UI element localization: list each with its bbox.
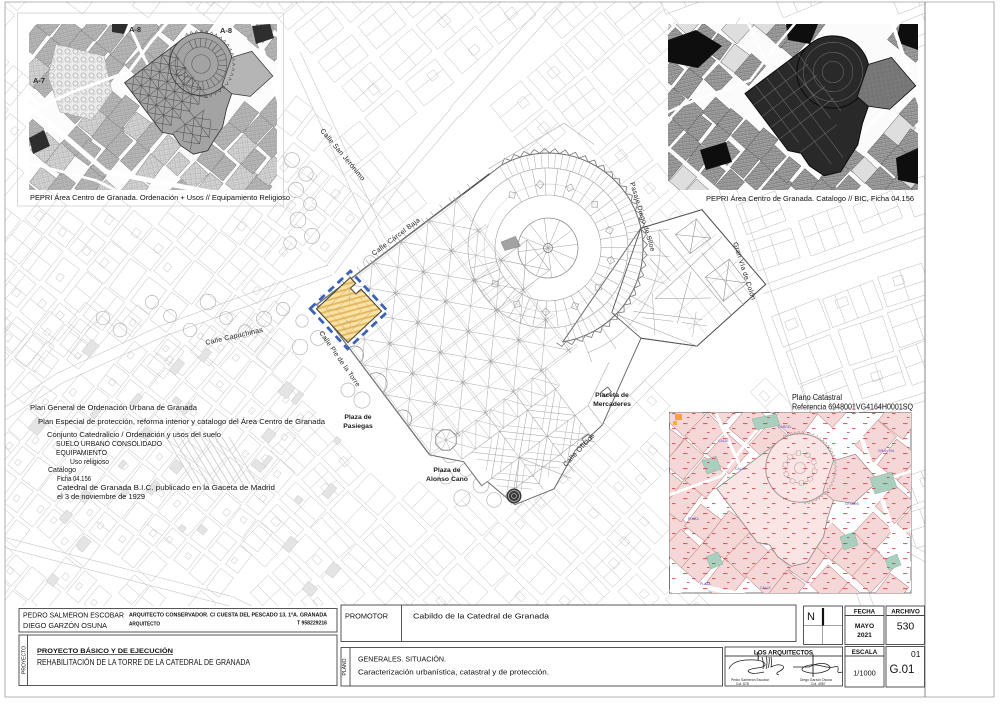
svg-text:PEPRI Área Centro de Granada.: PEPRI Área Centro de Granada. Ordenación… [30, 193, 290, 202]
svg-text:SUELO URBANO CONSOLIDADO: SUELO URBANO CONSOLIDADO [56, 439, 162, 448]
svg-text:CALLE: CALLE [760, 586, 771, 590]
svg-text:DIEGO GARZÓN OSUNA: DIEGO GARZÓN OSUNA [23, 621, 108, 630]
svg-text:Col. 4087: Col. 4087 [811, 682, 826, 686]
svg-text:CALLE: CALLE [718, 439, 729, 443]
svg-text:Plaza de: Plaza de [433, 467, 460, 474]
svg-text:Referencia 6948001VG4164H0001S: Referencia 6948001VG4164H0001SQ [792, 403, 913, 412]
svg-text:T 958229216: T 958229216 [297, 621, 327, 627]
svg-text:530: 530 [897, 621, 915, 633]
svg-text:ARQUITECTO CONSERVADOR. C/ CU: ARQUITECTO CONSERVADOR. C/ CUESTA DEL PE… [129, 613, 327, 619]
svg-text:Caracterización urbanística, c: Caracterización urbanística, catastral y… [358, 668, 549, 677]
svg-text:A-8: A-8 [129, 25, 141, 34]
svg-text:Plano Catastral: Plano Catastral [792, 393, 842, 402]
svg-text:PROYECTO BÁSICO Y DE EJECUCIÓN: PROYECTO BÁSICO Y DE EJECUCIÓN [37, 647, 174, 655]
svg-text:Catedral de Granada B.I.C. pub: Catedral de Granada B.I.C. publicado en … [57, 483, 275, 492]
svg-text:1/1000: 1/1000 [853, 669, 876, 678]
svg-text:ESCALA: ESCALA [852, 649, 878, 656]
svg-text:EQUIPAMIENTO: EQUIPAMIENTO [56, 448, 107, 457]
svg-text:Conjunto Catedralicio / Ordena: Conjunto Catedralicio / Ordenación y uso… [47, 430, 221, 439]
svg-text:Col. 678: Col. 678 [736, 682, 749, 686]
svg-text:CARCEL: CARCEL [778, 425, 792, 429]
svg-text:PLAZA: PLAZA [700, 582, 711, 586]
svg-text:Catálogo: Catálogo [48, 465, 76, 474]
svg-text:OFICIOS: OFICIOS [845, 502, 860, 506]
svg-text:Plaza de: Plaza de [344, 414, 371, 421]
svg-text:A-7: A-7 [33, 76, 45, 85]
svg-text:LOS ARQUITECTOS: LOS ARQUITECTOS [754, 650, 813, 657]
svg-text:Plan General de Ordenación Urb: Plan General de Ordenación Urbana de Gra… [30, 403, 198, 412]
svg-text:Cabildo de la Catedral de Gran: Cabildo de la Catedral de Granada [413, 612, 550, 621]
svg-text:A-8: A-8 [220, 26, 232, 35]
svg-text:PLANO: PLANO [342, 658, 348, 675]
svg-text:PEPRI Área Centro de Granada.: PEPRI Área Centro de Granada. Catalogo /… [706, 194, 914, 203]
svg-text:N: N [807, 611, 815, 623]
svg-text:REHABILITACIÓN DE LA TORRE DE: REHABILITACIÓN DE LA TORRE DE LA CATEDRA… [37, 658, 251, 667]
svg-text:Ficha 04.156: Ficha 04.156 [57, 474, 91, 483]
svg-text:MAYO: MAYO [855, 623, 874, 630]
svg-text:G.01: G.01 [890, 664, 915, 676]
svg-text:2021: 2021 [857, 632, 872, 639]
svg-text:PROYECTO: PROYECTO [22, 646, 28, 674]
svg-text:CALLE: CALLE [735, 467, 746, 471]
svg-text:PROMOTOR: PROMOTOR [345, 612, 388, 621]
svg-text:PEDRO SALMERON ESCOBAR: PEDRO SALMERON ESCOBAR [23, 611, 124, 620]
svg-text:PLAZA: PLAZA [688, 517, 699, 521]
svg-text:Alonso Cano: Alonso Cano [426, 476, 468, 483]
svg-text:GRAN VIA: GRAN VIA [878, 449, 895, 453]
svg-text:Placeta de: Placeta de [595, 392, 629, 399]
svg-text:el 3 de noviembre de 1929: el 3 de noviembre de 1929 [57, 492, 145, 501]
svg-text:ARQUITECTO: ARQUITECTO [129, 622, 160, 628]
svg-text:ARCHIVO: ARCHIVO [891, 609, 920, 616]
svg-text:FECHA: FECHA [854, 609, 876, 616]
svg-text:GENERALES. SITUACIÓN.: GENERALES. SITUACIÓN. [358, 655, 446, 664]
svg-text:Pasiegas: Pasiegas [343, 423, 373, 430]
svg-text:Plan Especial de protección, r: Plan Especial de protección, reforma int… [38, 417, 326, 426]
svg-text:Mercaderes: Mercaderes [593, 401, 631, 408]
svg-text:01: 01 [911, 649, 921, 659]
